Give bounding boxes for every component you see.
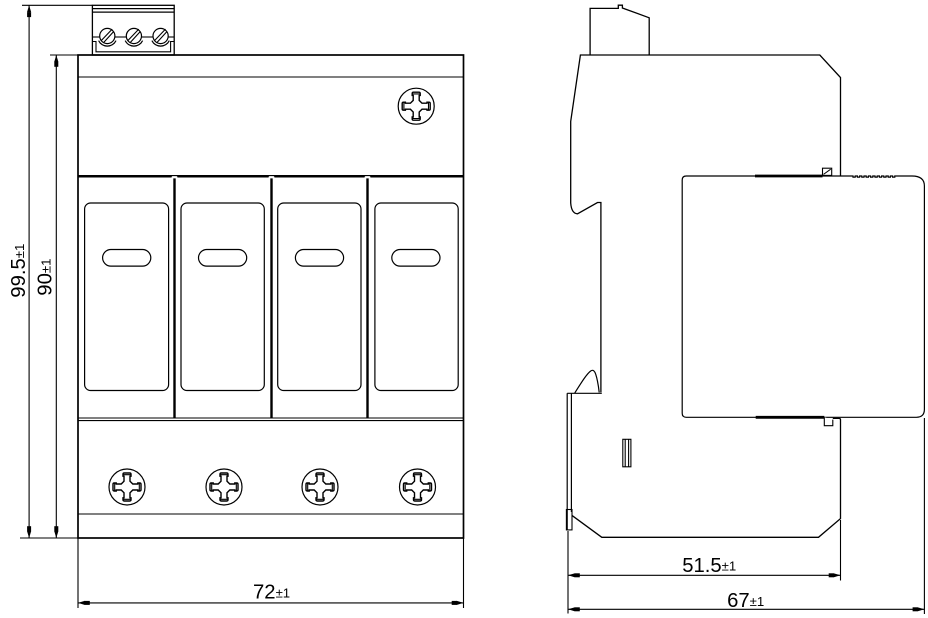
svg-text:72±1: 72±1	[253, 582, 290, 604]
svg-text:90±1: 90±1	[35, 259, 57, 296]
svg-text:51.5±1: 51.5±1	[682, 555, 736, 577]
svg-text:99.5±1: 99.5±1	[8, 244, 30, 298]
svg-text:67±1: 67±1	[727, 590, 764, 612]
